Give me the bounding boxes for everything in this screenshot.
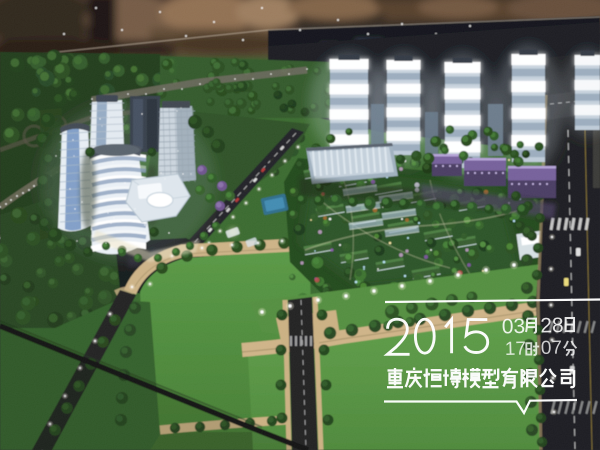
svg-text:03: 03 (502, 315, 526, 339)
svg-text:17: 17 (505, 338, 527, 360)
svg-text:28: 28 (540, 314, 564, 338)
svg-text:07: 07 (541, 337, 563, 359)
